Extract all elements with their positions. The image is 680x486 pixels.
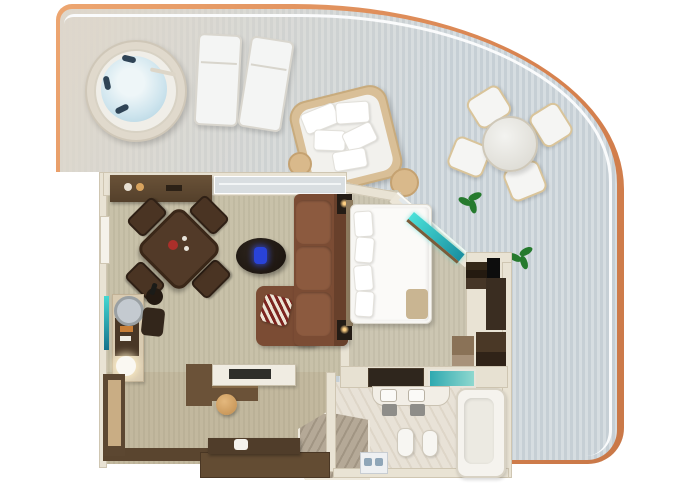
exterior-background <box>40 172 103 482</box>
balcony-dining-table <box>482 116 538 172</box>
hot-tub-water <box>101 56 167 122</box>
wardrobe-cabinet <box>476 332 506 366</box>
desk-book <box>120 326 133 332</box>
closet-wardrobe-interior <box>108 380 121 446</box>
bathtub <box>456 388 506 478</box>
wardrobe-cabinet <box>486 278 506 330</box>
toilet <box>397 428 414 457</box>
table-decor-plate <box>168 240 178 250</box>
throw-blanket <box>406 289 428 319</box>
closet-bench <box>208 438 300 454</box>
shower-fixture-panel <box>360 452 388 474</box>
divider-counter <box>340 366 508 388</box>
blue-glass-vase <box>254 247 267 264</box>
potted-plant <box>458 190 484 216</box>
sofa-cushion <box>296 292 332 336</box>
table-decor <box>182 236 187 241</box>
desk-paper <box>120 336 131 341</box>
entry-door <box>100 216 110 264</box>
sideboard <box>110 175 212 202</box>
vanity-stool <box>216 394 237 415</box>
closet-island-counter <box>212 364 296 386</box>
bidet <box>422 430 438 457</box>
shower-control <box>364 458 372 466</box>
shower-control <box>375 458 383 466</box>
sink <box>408 389 425 402</box>
sink <box>380 389 397 402</box>
hanging-towel <box>382 404 397 416</box>
bench-towel <box>234 439 248 450</box>
living-balcony-glass-door <box>214 176 346 194</box>
teal-wall-art <box>104 296 109 350</box>
desk-chair <box>141 307 166 337</box>
dark-counter-top <box>368 368 424 387</box>
nightstand-lamp-glow <box>340 325 349 334</box>
open-shelf-unit <box>452 336 474 368</box>
desk-lamp <box>116 356 136 376</box>
sun-lounger <box>194 33 243 127</box>
step-shelves <box>466 262 488 289</box>
hanging-towel <box>410 404 425 416</box>
closet-wood-wall <box>186 364 212 406</box>
floorplan-canvas <box>0 0 680 486</box>
table-decor <box>184 246 189 251</box>
round-mirror <box>114 296 144 326</box>
wall-closet-bottom-wood <box>200 452 330 478</box>
sofa-cushion <box>296 246 332 290</box>
sofa-cushion <box>296 200 332 244</box>
